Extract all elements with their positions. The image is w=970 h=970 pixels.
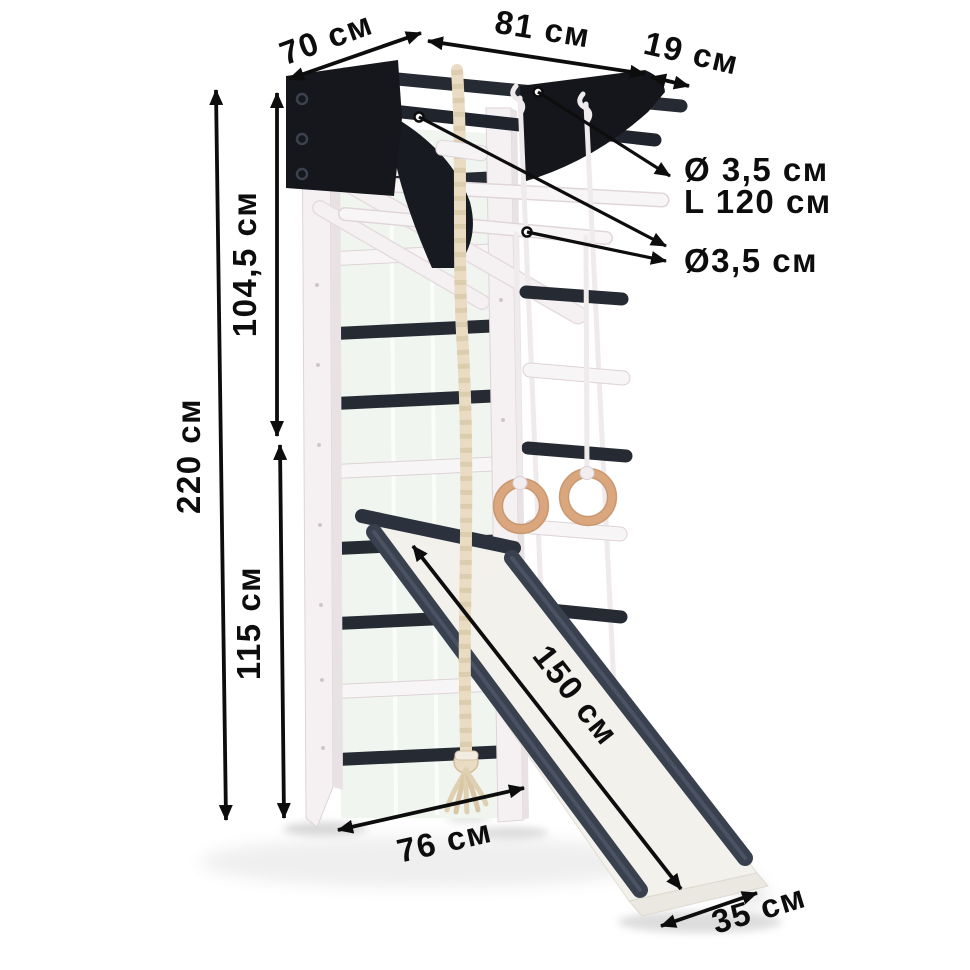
dimension-104cm-label: 104,5 см xyxy=(226,191,263,338)
rope-ladder-rung-dark xyxy=(528,448,626,456)
rung-diameter-label: Ø3,5 см xyxy=(684,242,818,279)
ring-strap-loop xyxy=(513,477,527,490)
dimension-81cm-label: 81 см xyxy=(492,3,593,55)
diagram-canvas: 70 см 81 см 19 см Ø 3,5 см L 120 см Ø3,5… xyxy=(0,0,970,970)
wall-mount-plate xyxy=(286,60,402,196)
ladder-left-post xyxy=(302,84,343,827)
dimension-115cm-label: 115 см xyxy=(230,566,267,680)
dimension-220cm-line xyxy=(216,90,226,820)
dimension-70cm-label: 70 см xyxy=(275,4,378,72)
rung-white xyxy=(327,684,497,692)
dimension-220cm-label: 220 см xyxy=(170,398,207,514)
dimension-19cm-label: 19 см xyxy=(641,24,743,82)
ring-strap-loop xyxy=(580,467,594,480)
rope-ladder-rung-white xyxy=(532,527,620,534)
rope-ladder-rung-dark xyxy=(526,292,622,299)
dimension-115cm-line xyxy=(280,445,284,818)
rope-ladder-rung-white xyxy=(530,370,623,378)
bar-length-label: L 120 см xyxy=(684,183,832,220)
post-shadow xyxy=(283,822,367,836)
ring-strap xyxy=(586,237,587,475)
